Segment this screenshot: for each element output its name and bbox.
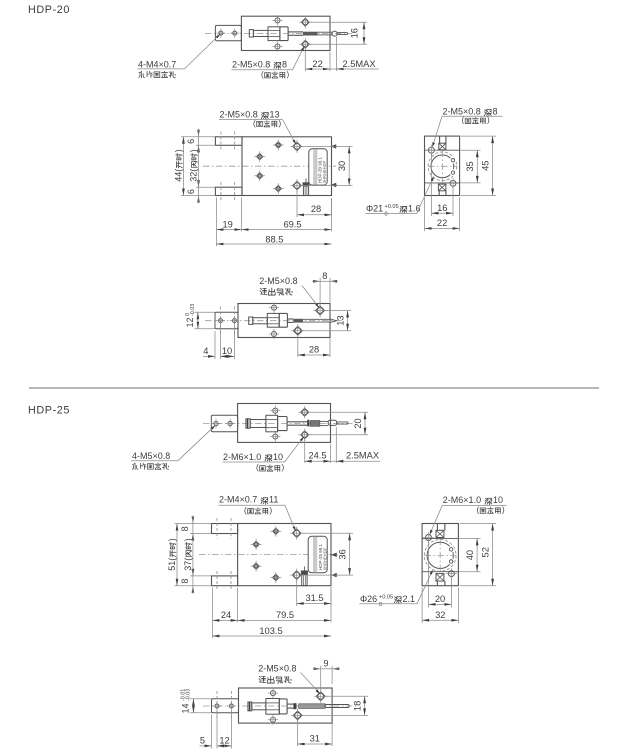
svg-text:2-M5×0.8: 2-M5×0.8 <box>259 276 297 286</box>
svg-text:44(: 44( <box>173 169 183 182</box>
svg-text:31: 31 <box>310 734 320 744</box>
svg-text:): ) <box>487 116 490 125</box>
svg-text:24.5: 24.5 <box>308 451 326 461</box>
svg-text:2-M4×0.7: 2-M4×0.7 <box>219 495 257 505</box>
svg-text:5: 5 <box>200 736 205 746</box>
svg-text:8: 8 <box>322 271 327 281</box>
svg-text:): ) <box>188 149 198 152</box>
svg-text:24: 24 <box>221 610 231 620</box>
svg-text:4-M5×0.8: 4-M5×0.8 <box>132 451 170 461</box>
svg-text:36: 36 <box>338 549 348 559</box>
svg-text:2-M5×0.8: 2-M5×0.8 <box>258 663 296 673</box>
svg-text:): ) <box>173 149 183 152</box>
svg-text:0: 0 <box>379 602 382 608</box>
svg-text:45: 45 <box>481 161 491 171</box>
svg-text:): ) <box>282 463 285 472</box>
svg-text:103.5: 103.5 <box>259 626 282 636</box>
svg-text:HDP-20: HDP-20 <box>28 4 70 16</box>
svg-text:28: 28 <box>309 345 319 355</box>
svg-text:19: 19 <box>223 219 233 229</box>
svg-text:32(: 32( <box>188 169 198 182</box>
svg-text:11: 11 <box>269 495 278 505</box>
svg-text:lIHRHEHDP: lIHRHEHDP <box>322 547 327 570</box>
svg-text:16: 16 <box>350 28 360 38</box>
svg-text:28: 28 <box>311 204 321 214</box>
svg-text:9: 9 <box>323 659 328 669</box>
svg-text:lIHRHEHDP: lIHRHEHDP <box>322 160 327 183</box>
svg-text:0: 0 <box>385 212 388 218</box>
svg-text:8: 8 <box>493 107 498 117</box>
svg-text:2.5MAX: 2.5MAX <box>346 451 379 461</box>
svg-text:(: ( <box>256 463 259 472</box>
svg-text:): ) <box>270 506 273 515</box>
svg-text:): ) <box>167 538 177 541</box>
svg-text:20: 20 <box>435 594 445 604</box>
svg-text:): ) <box>279 119 282 128</box>
svg-text:8: 8 <box>180 526 190 531</box>
svg-text:2-M5×0.8: 2-M5×0.8 <box>232 59 270 69</box>
svg-text:8: 8 <box>180 579 190 584</box>
svg-text:-0.03: -0.03 <box>186 689 192 701</box>
svg-text:52: 52 <box>481 547 491 557</box>
svg-text:(: ( <box>261 70 264 79</box>
svg-text:HDP-25: HDP-25 <box>28 405 70 417</box>
svg-text:Φ21: Φ21 <box>366 204 383 214</box>
svg-text:13: 13 <box>336 315 346 325</box>
svg-text:): ) <box>502 505 505 514</box>
svg-text:79.5: 79.5 <box>276 610 294 620</box>
svg-text:20: 20 <box>353 418 363 428</box>
svg-text:37(: 37( <box>183 558 193 571</box>
svg-text:40: 40 <box>465 550 475 560</box>
svg-text:6: 6 <box>186 139 196 144</box>
svg-text:10: 10 <box>493 495 503 505</box>
svg-text:12: 12 <box>219 736 229 746</box>
svg-text:(: ( <box>462 116 465 125</box>
svg-text:8: 8 <box>282 59 287 69</box>
svg-text:16: 16 <box>437 203 447 213</box>
svg-text:Φ26: Φ26 <box>360 594 377 604</box>
svg-text:88.5: 88.5 <box>265 234 283 244</box>
svg-text:): ) <box>183 538 193 541</box>
svg-text:51(: 51( <box>167 558 177 571</box>
svg-text:(: ( <box>253 119 256 128</box>
svg-text:-0.03: -0.03 <box>190 304 196 316</box>
svg-text:2-M6×1.0: 2-M6×1.0 <box>223 452 261 462</box>
svg-text:4-M4×0.7: 4-M4×0.7 <box>138 59 176 69</box>
svg-text:30: 30 <box>337 161 347 171</box>
svg-text:31.5: 31.5 <box>305 593 323 603</box>
svg-text:10: 10 <box>222 346 232 356</box>
svg-text:69.5: 69.5 <box>283 219 301 229</box>
svg-text:32: 32 <box>435 610 445 620</box>
svg-text:2.5MAX: 2.5MAX <box>343 59 376 69</box>
svg-text:(: ( <box>477 505 480 514</box>
svg-text:+0.05: +0.05 <box>379 595 393 601</box>
svg-text:10: 10 <box>273 452 283 462</box>
svg-text:4: 4 <box>203 346 208 356</box>
svg-text:35: 35 <box>465 161 475 171</box>
svg-text:): ) <box>287 70 290 79</box>
svg-text:14: 14 <box>180 703 190 713</box>
svg-text:12: 12 <box>185 317 195 327</box>
svg-text:2.1: 2.1 <box>403 594 416 604</box>
svg-text:(: ( <box>244 506 247 515</box>
svg-text:+0.05: +0.05 <box>385 204 399 210</box>
svg-text:22: 22 <box>312 59 322 69</box>
svg-text:18: 18 <box>353 701 363 711</box>
svg-text:22: 22 <box>437 218 447 228</box>
svg-text:6: 6 <box>186 189 196 194</box>
svg-text:2-M6×1.0: 2-M6×1.0 <box>443 495 481 505</box>
